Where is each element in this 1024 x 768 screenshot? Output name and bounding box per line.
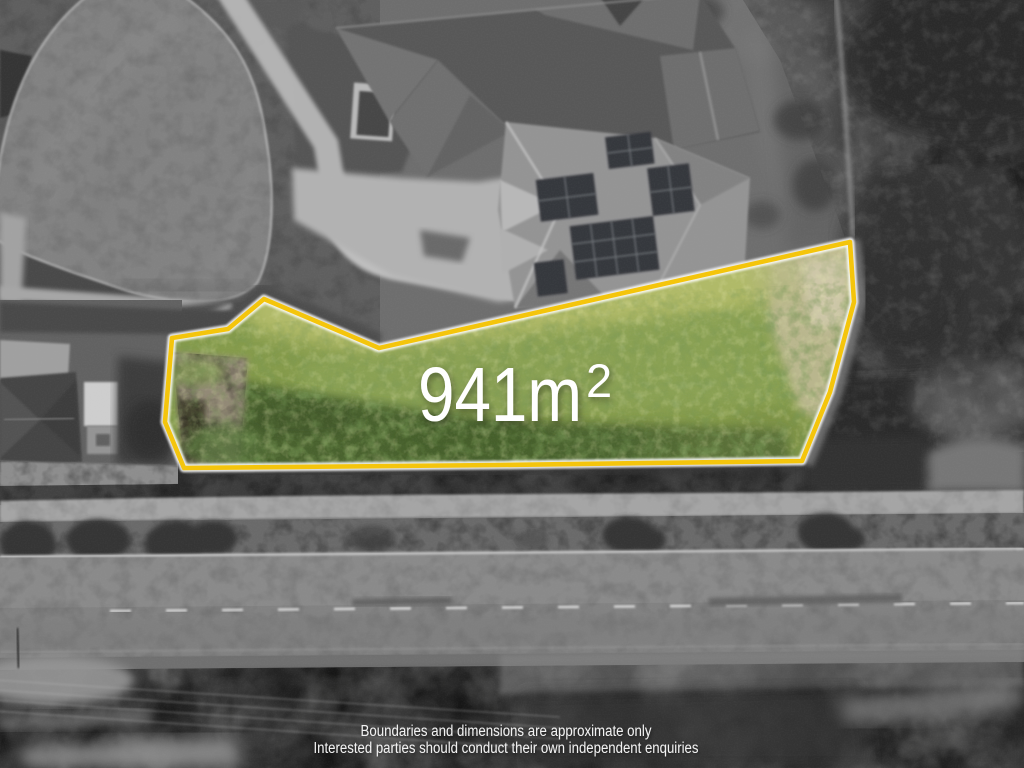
svg-text:941m: 941m — [418, 352, 582, 438]
svg-text:Interested parties should cond: Interested parties should conduct their … — [314, 740, 699, 757]
svg-text:2: 2 — [586, 354, 612, 407]
svg-text:Boundaries and dimensions are: Boundaries and dimensions are approximat… — [361, 723, 652, 740]
